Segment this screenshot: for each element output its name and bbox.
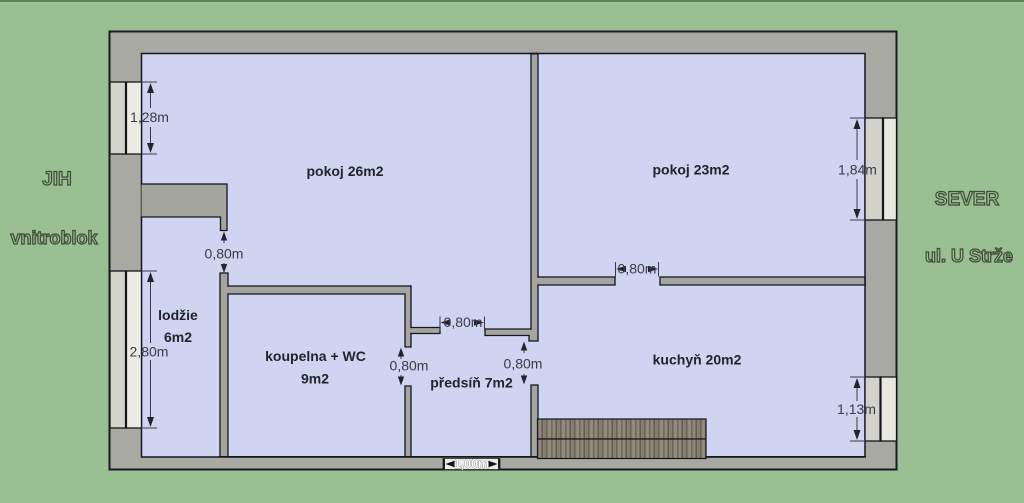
svg-text:1,28m: 1,28m (130, 109, 169, 125)
svg-text:0,80m: 0,80m (504, 356, 543, 372)
svg-text:SEVER: SEVER (935, 189, 1000, 210)
svg-text:kuchyň 20m2: kuchyň 20m2 (653, 352, 742, 368)
svg-text:koupelna + WC: koupelna + WC (265, 348, 366, 364)
svg-text:0,80m: 0,80m (444, 314, 483, 330)
svg-text:ul. U Strže: ul. U Strže (925, 246, 1013, 266)
svg-text:JIH: JIH (42, 169, 72, 190)
svg-text:1,84m: 1,84m (838, 162, 877, 178)
svg-text:1,00m: 1,00m (454, 457, 489, 471)
svg-text:0,80m: 0,80m (390, 358, 429, 374)
svg-text:lodžie: lodžie (158, 307, 198, 323)
svg-text:0,80m: 0,80m (205, 246, 244, 262)
svg-text:9m2: 9m2 (301, 371, 329, 387)
svg-text:2,80m: 2,80m (130, 344, 169, 360)
svg-text:předsíň 7m2: předsíň 7m2 (430, 375, 513, 391)
svg-text:pokoj 26m2: pokoj 26m2 (306, 163, 383, 179)
svg-text:1,13m: 1,13m (837, 401, 876, 417)
svg-text:pokoj 23m2: pokoj 23m2 (652, 162, 729, 178)
svg-text:0,80m: 0,80m (618, 261, 657, 277)
svg-text:6m2: 6m2 (164, 329, 192, 345)
svg-text:vnitroblok: vnitroblok (10, 228, 98, 248)
